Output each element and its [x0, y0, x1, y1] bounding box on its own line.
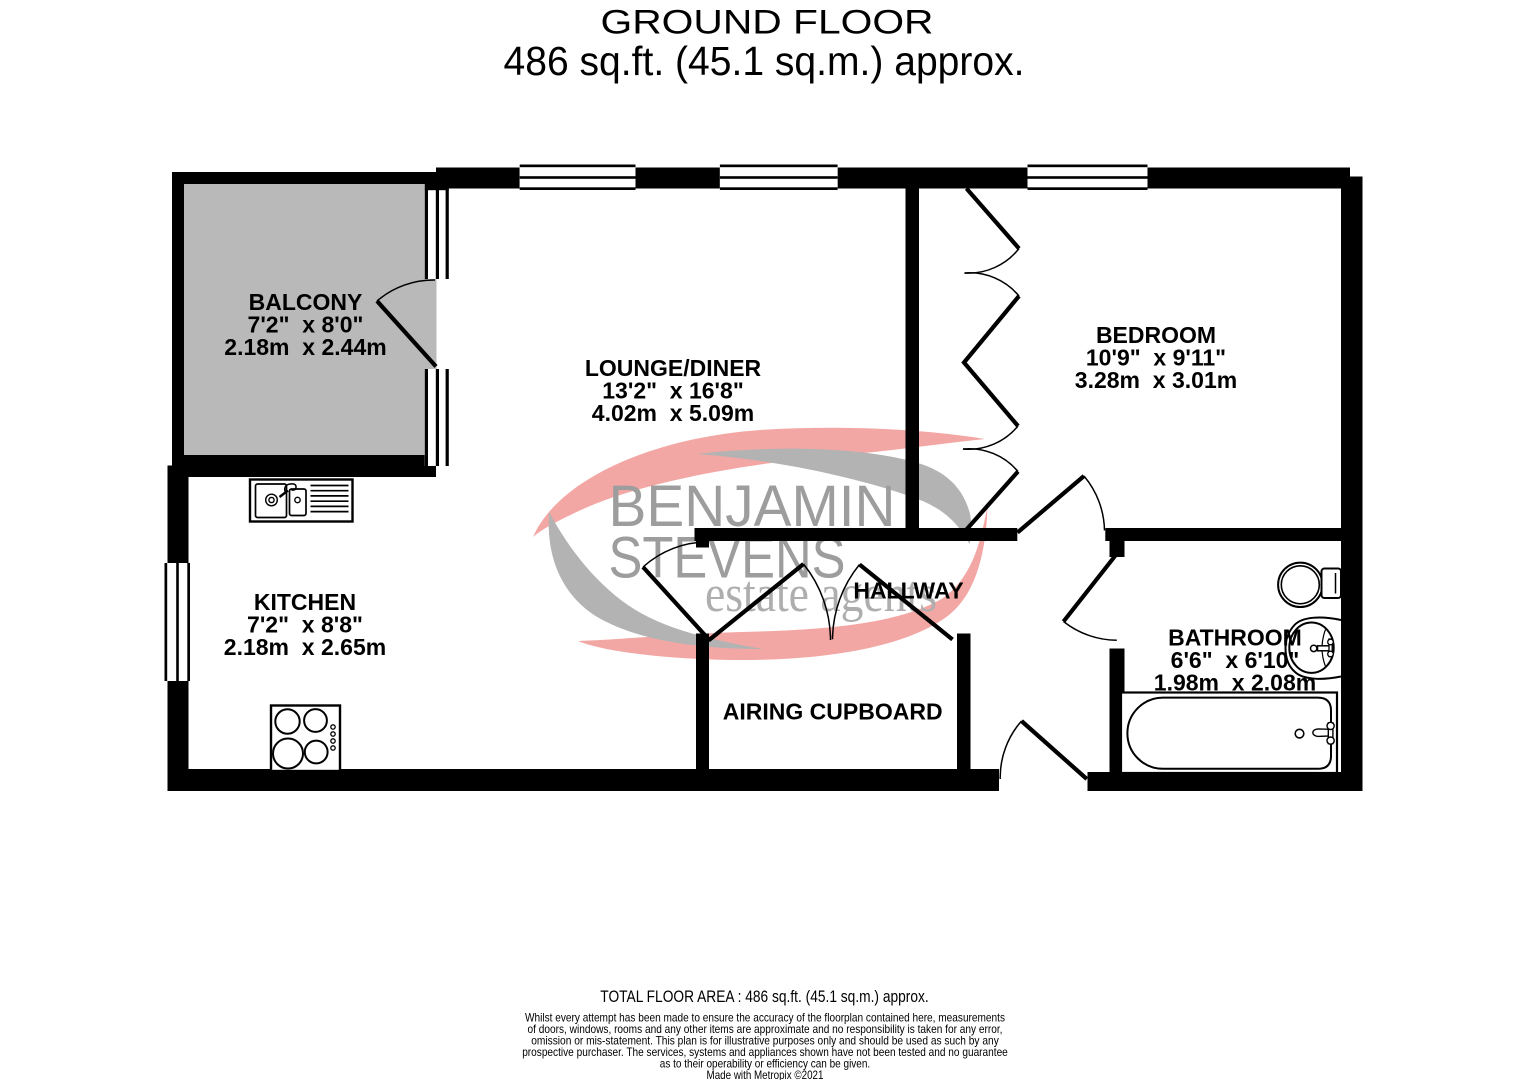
svg-text:2.18m x 2.44m: 2.18m x 2.44m — [224, 334, 386, 360]
svg-text:AIRING CUPBOARD: AIRING CUPBOARD — [723, 699, 943, 725]
svg-text:2.18m x 2.65m: 2.18m x 2.65m — [224, 634, 386, 660]
svg-text:HALLWAY: HALLWAY — [853, 578, 963, 604]
svg-text:3.28m x 3.01m: 3.28m x 3.01m — [1075, 367, 1237, 393]
svg-text:486 sq.ft. (45.1 sq.m.) approx: 486 sq.ft. (45.1 sq.m.) approx. — [504, 38, 1025, 84]
svg-text:4.02m x 5.09m: 4.02m x 5.09m — [592, 400, 754, 426]
svg-text:Made with Metropix ©2021: Made with Metropix ©2021 — [707, 1069, 824, 1080]
svg-text:TOTAL FLOOR AREA : 486 sq.ft.: TOTAL FLOOR AREA : 486 sq.ft. (45.1 sq.m… — [600, 987, 928, 1006]
svg-text:GROUND FLOOR: GROUND FLOOR — [601, 4, 934, 42]
svg-text:1.98m x 2.08m: 1.98m x 2.08m — [1154, 669, 1316, 695]
